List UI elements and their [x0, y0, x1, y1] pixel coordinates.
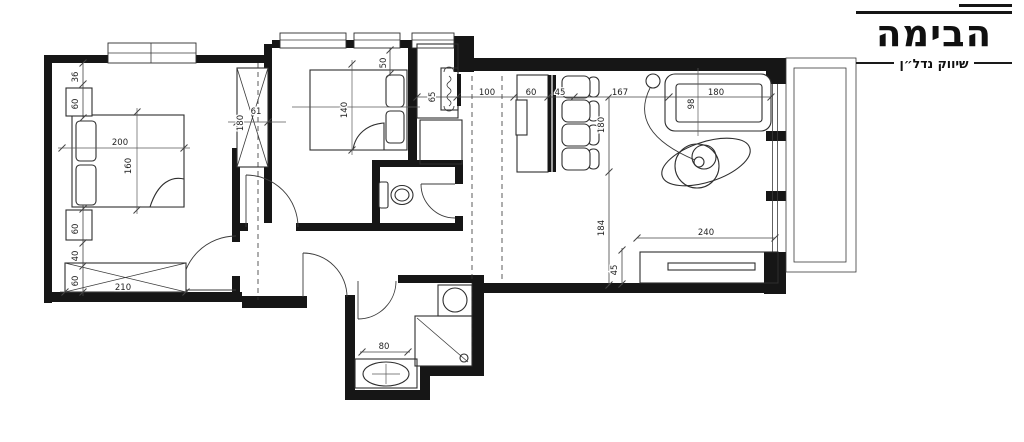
logo-subtitle-row: שיווק נדל״ן	[856, 56, 1012, 71]
floor-plan-sheet: 36 60 200 160 60 40 60 210 180 61 140 50…	[0, 0, 1024, 442]
bedroom1-window	[108, 43, 196, 63]
dim-label: 167	[612, 88, 628, 98]
dim-label: 45	[555, 88, 566, 98]
bed2-icon	[310, 70, 407, 150]
kitchen-sink-icon	[441, 67, 461, 111]
dim-label: 140	[340, 102, 350, 118]
entry-door	[303, 253, 347, 297]
bathroom-door	[358, 281, 396, 319]
toilet-icon	[379, 182, 413, 208]
dim-label: 180	[708, 88, 724, 98]
logo-subtitle-rule	[856, 62, 894, 64]
dim-label: 180	[597, 117, 607, 133]
dim-label: 60	[71, 276, 81, 287]
dim-label: 80	[379, 342, 390, 352]
logo: הבימה שיווק נדל״ן	[856, 4, 1012, 71]
dim-label: 180	[236, 115, 246, 131]
balcony-outline	[786, 58, 856, 272]
dim-label: 36	[71, 72, 81, 83]
logo-subtitle: שיווק נדל״ן	[899, 56, 968, 71]
dim-label: 45	[610, 265, 620, 276]
dim-label: 60	[71, 99, 81, 110]
bedroom1-door	[182, 236, 236, 290]
vanity-icon	[355, 359, 417, 388]
dim-label: 184	[597, 220, 607, 236]
plant-icon	[656, 129, 756, 195]
logo-title: הבימה	[856, 15, 1012, 54]
dim-label: 100	[479, 88, 495, 98]
dim-label: 200	[112, 138, 128, 148]
dim-label: 60	[71, 224, 81, 235]
tv-console-icon	[640, 252, 778, 283]
dim-label: 60	[526, 88, 537, 98]
bath-sink-icon	[438, 285, 472, 316]
wc-door	[421, 184, 455, 218]
logo-rule-fragment	[959, 4, 1012, 7]
logo-subtitle-rule	[974, 62, 1012, 64]
dim-label: 160	[124, 158, 134, 174]
dim-label: 65	[428, 92, 438, 103]
dim-label: 50	[379, 58, 389, 69]
dim-label: 61	[251, 107, 262, 117]
dim-label: 210	[115, 283, 131, 293]
dim-label: 40	[71, 251, 81, 262]
shower-icon	[415, 316, 472, 366]
sofa-icon	[665, 74, 771, 131]
bar-chairs	[562, 76, 599, 170]
dim-label: 240	[698, 228, 714, 238]
bedroom2-windows	[280, 33, 454, 48]
living-glass-wall	[773, 84, 778, 252]
dim-label: 98	[687, 99, 697, 110]
